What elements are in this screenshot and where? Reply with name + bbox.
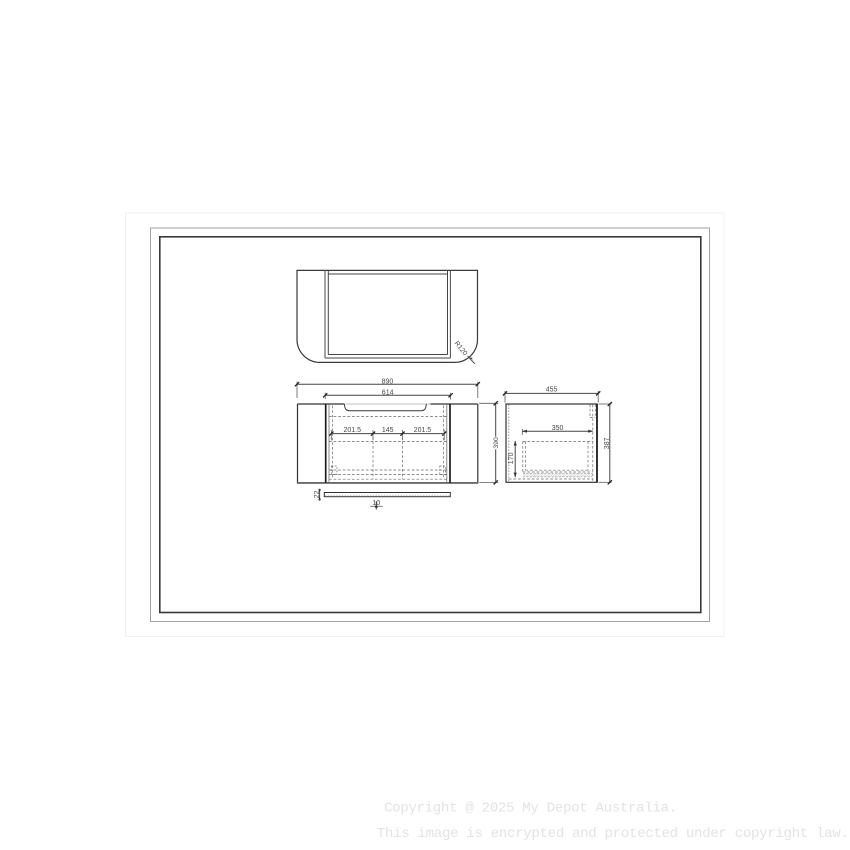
svg-text:10: 10: [372, 500, 380, 507]
svg-text:Copyright @ 2025 My Depot Aust: Copyright @ 2025 My Depot Australia.: [384, 801, 677, 817]
svg-text:455: 455: [546, 386, 558, 393]
svg-text:201.5: 201.5: [414, 427, 432, 434]
svg-text:This image is encrypted and pr: This image is encrypted and protected un…: [377, 826, 849, 842]
svg-text:614: 614: [382, 389, 394, 396]
svg-text:387: 387: [604, 437, 611, 449]
svg-text:145: 145: [382, 427, 394, 434]
svg-text:390: 390: [493, 437, 500, 449]
svg-text:890: 890: [382, 379, 394, 386]
svg-text:22: 22: [314, 491, 321, 499]
svg-text:201.5: 201.5: [344, 427, 362, 434]
svg-text:170: 170: [508, 452, 515, 464]
svg-text:350: 350: [552, 425, 564, 432]
svg-text:R120: R120: [453, 340, 469, 357]
